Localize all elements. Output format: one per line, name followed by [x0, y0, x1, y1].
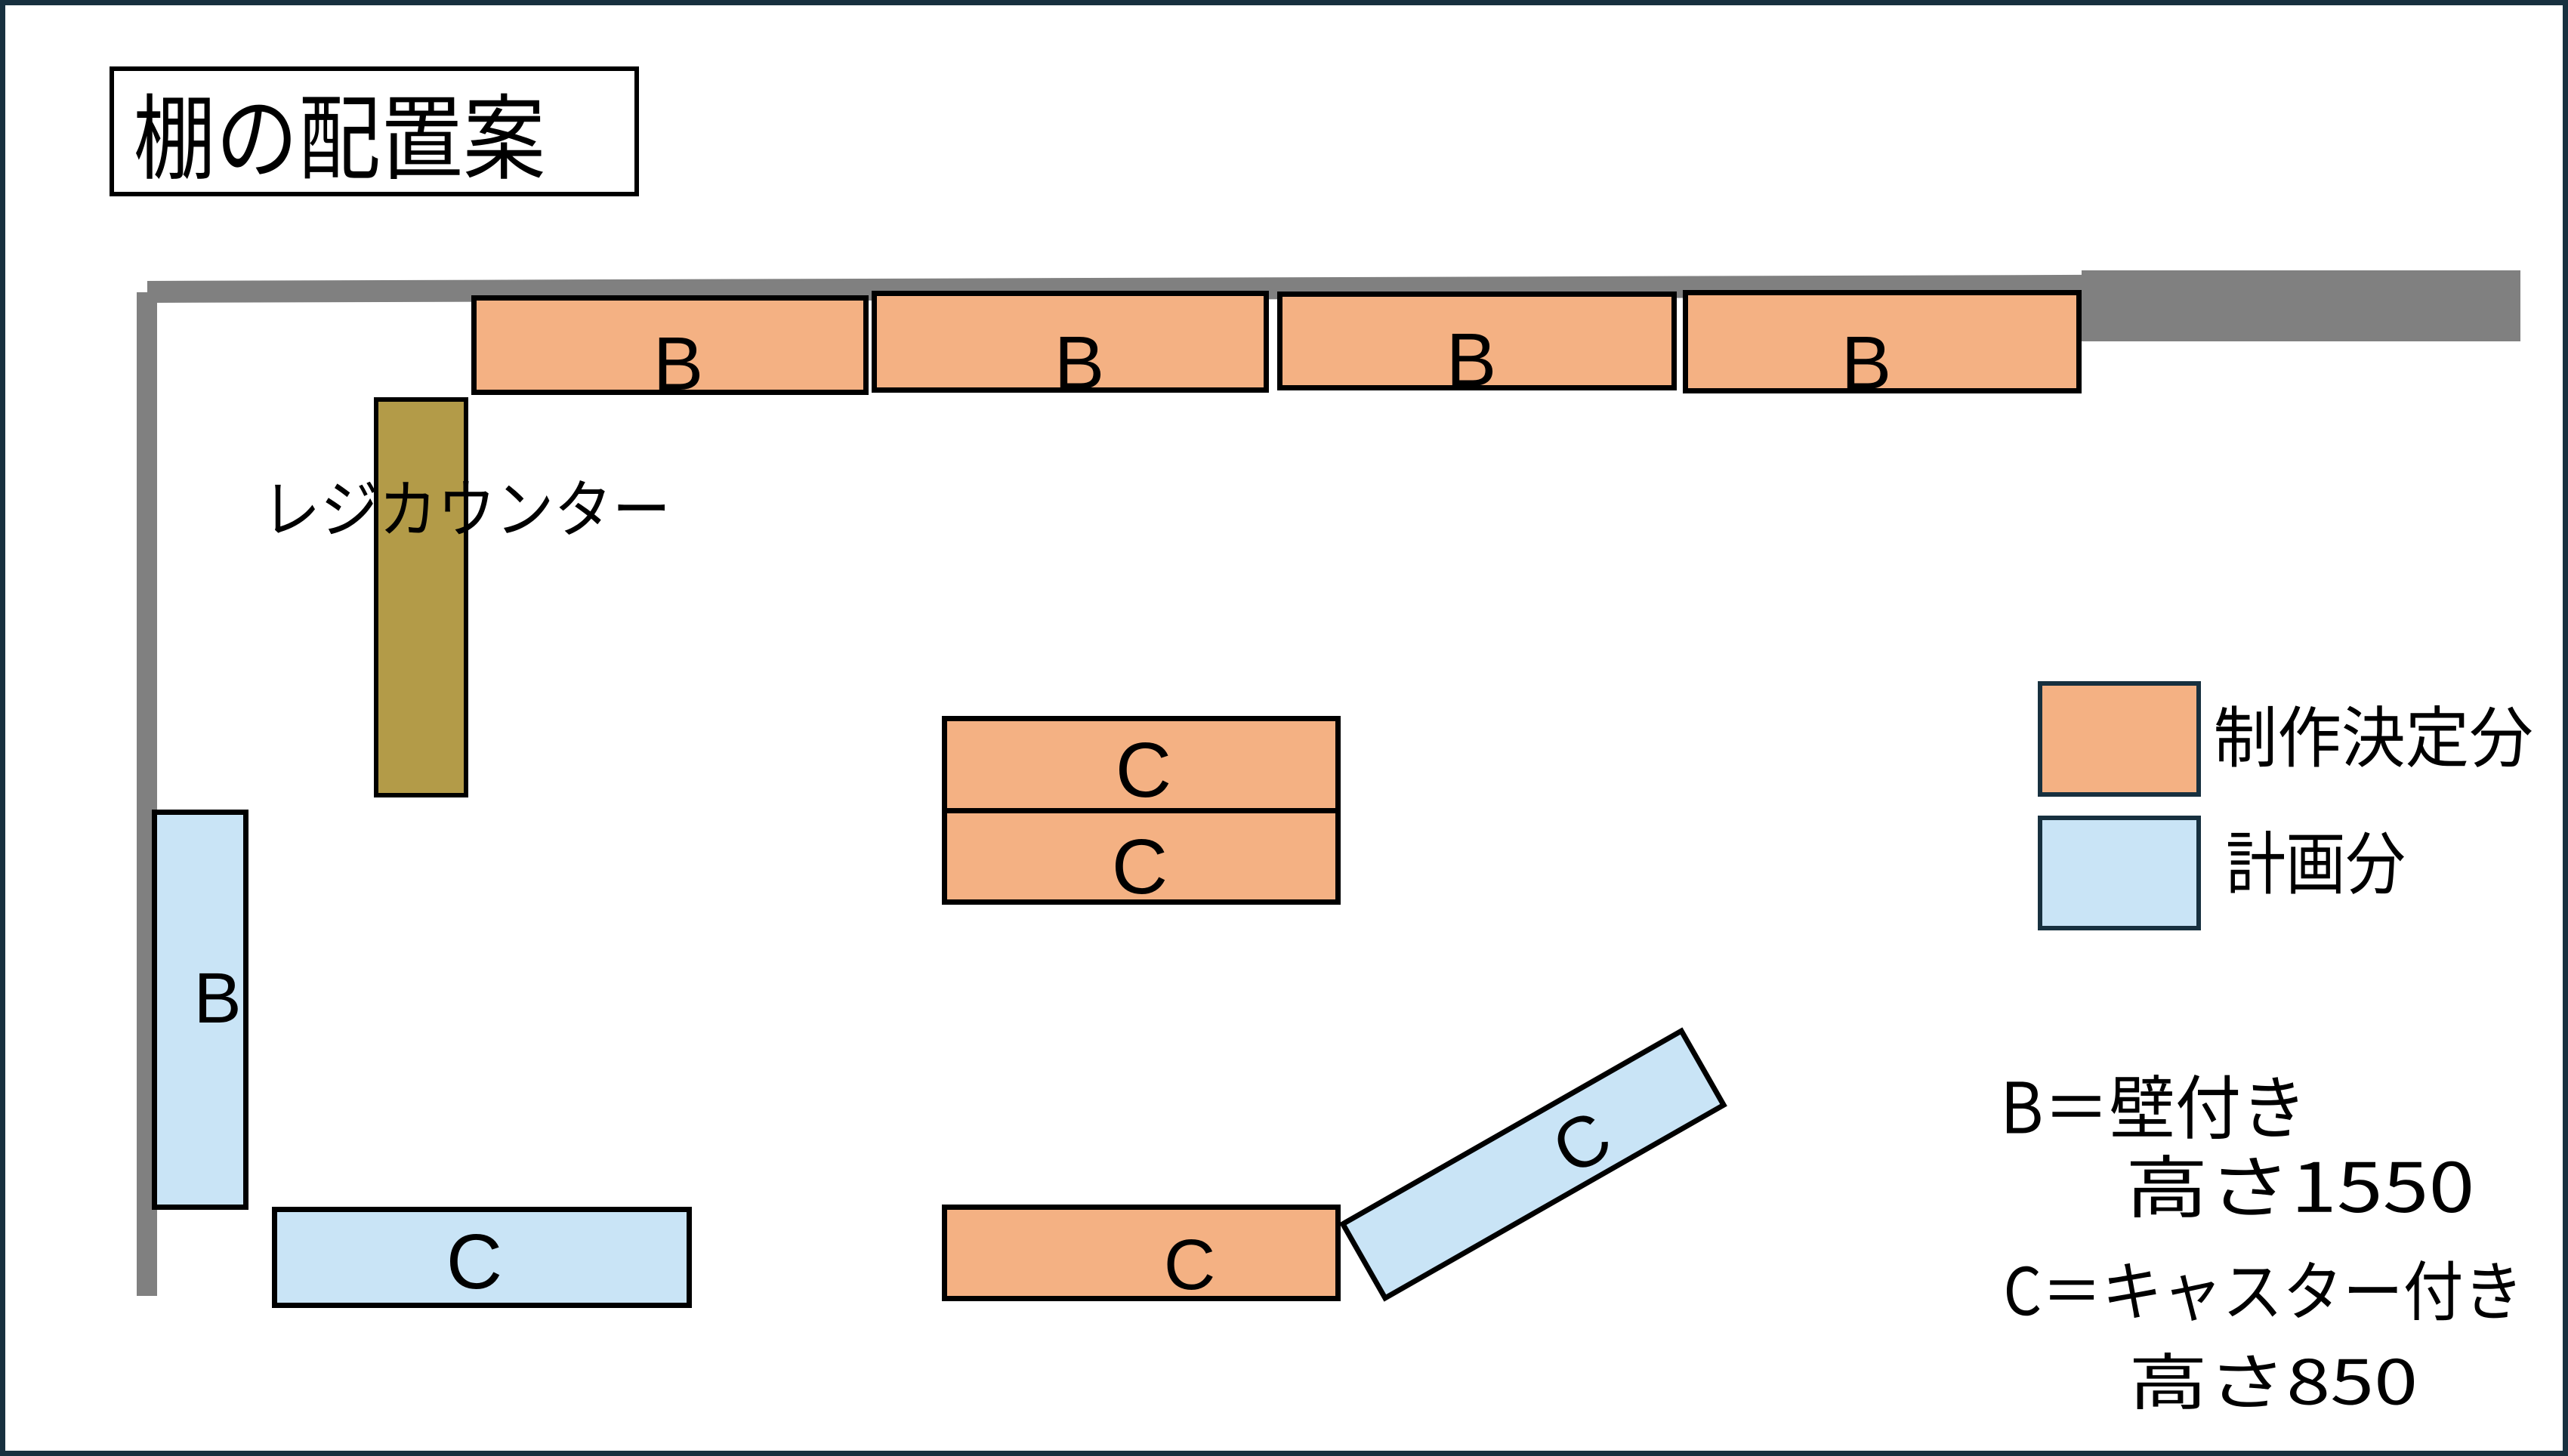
svg-text:C: C [446, 1218, 502, 1305]
svg-text:B: B [1841, 321, 1892, 406]
svg-text:B: B [1054, 321, 1105, 406]
svg-text:B: B [653, 322, 704, 406]
svg-text:C: C [1164, 1225, 1216, 1305]
svg-text:C: C [1112, 823, 1168, 910]
svg-text:B: B [1446, 318, 1497, 403]
svg-text:C: C [1116, 726, 1171, 813]
svg-text:B: B [193, 958, 241, 1038]
